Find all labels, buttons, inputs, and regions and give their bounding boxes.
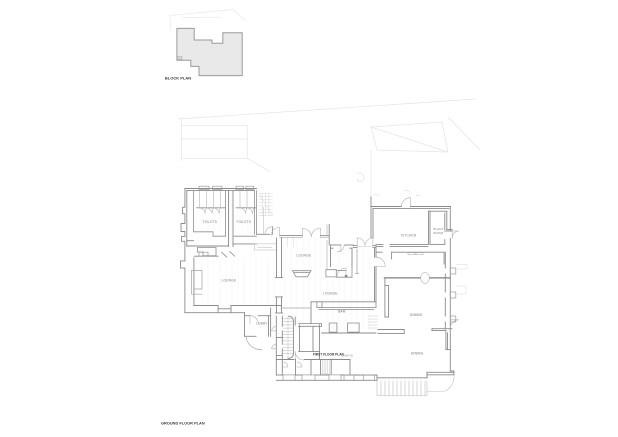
svg-text:TOILETS: TOILETS (203, 220, 218, 224)
svg-text:LOUNGE: LOUNGE (323, 291, 338, 295)
svg-text:BAR: BAR (338, 309, 346, 313)
svg-text:LOUNGE: LOUNGE (222, 278, 237, 282)
svg-text:FIRST FLOOR PLAN: FIRST FLOOR PLAN (313, 352, 345, 356)
svg-text:ROOM: ROOM (433, 231, 443, 235)
svg-text:DINING: DINING (342, 354, 354, 358)
svg-text:KITCHEN: KITCHEN (401, 233, 417, 237)
svg-text:LOUNGE: LOUNGE (297, 253, 312, 257)
svg-text:GROUND FLOOR PLAN: GROUND FLOOR PLAN (161, 421, 205, 426)
svg-text:DINING: DINING (410, 313, 423, 317)
svg-text:LOBBY: LOBBY (256, 321, 268, 325)
svg-text:DINING: DINING (411, 352, 424, 356)
svg-text:BLOCK PLAN: BLOCK PLAN (165, 76, 191, 81)
svg-text:TOILETS: TOILETS (237, 220, 252, 224)
